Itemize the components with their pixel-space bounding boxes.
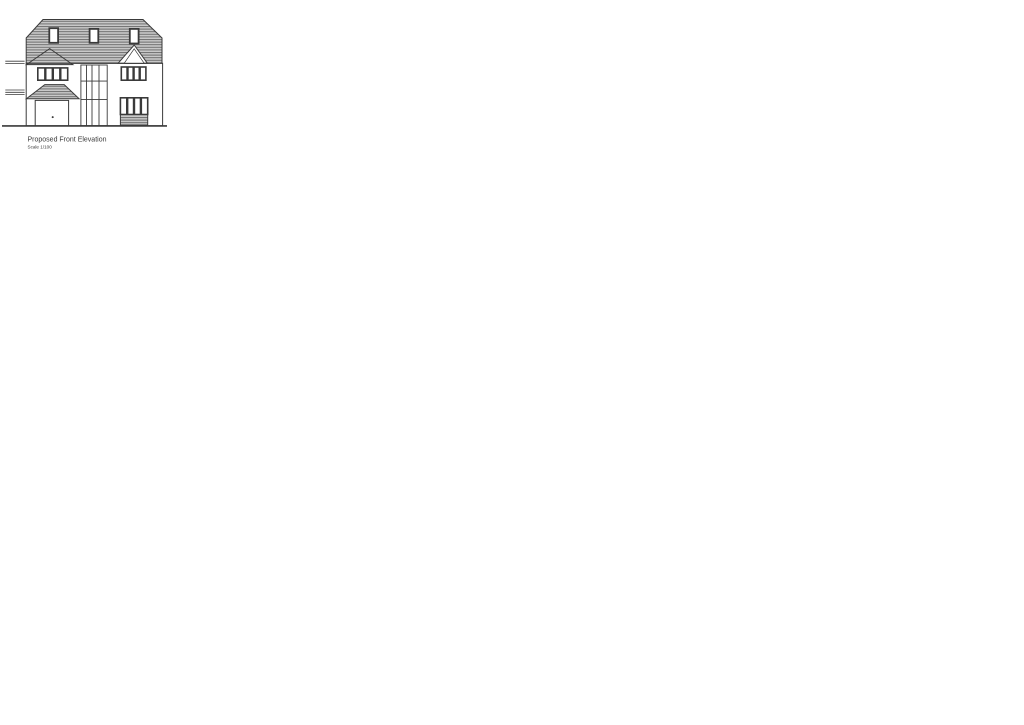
svg-text:Proposed Front Elevation: Proposed Front Elevation	[28, 137, 107, 144]
svg-text:Scale 1/100: Scale 1/100	[28, 145, 53, 150]
